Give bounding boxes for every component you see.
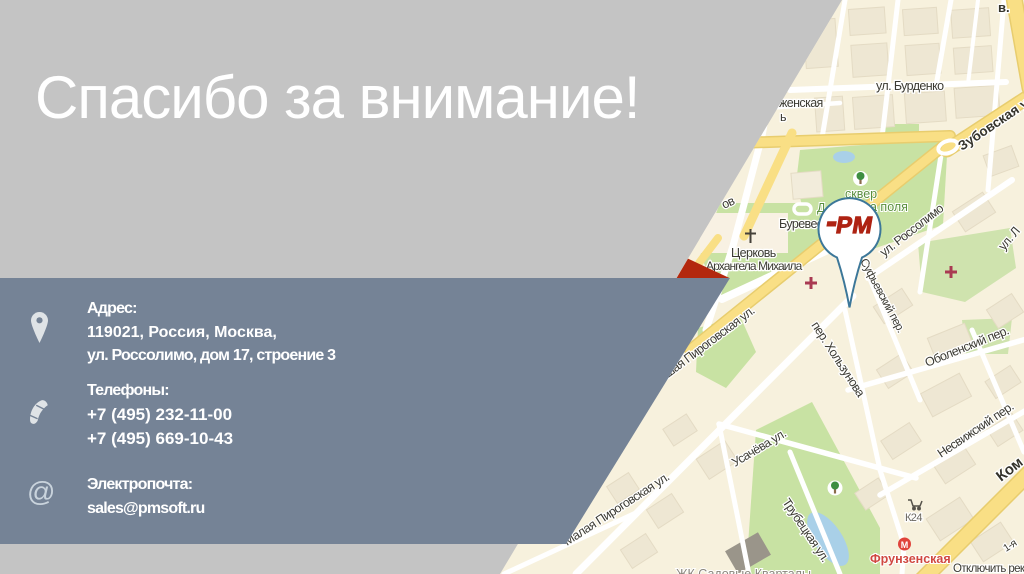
svg-text:ь: ь <box>780 110 786 124</box>
svg-text:М: М <box>901 540 909 550</box>
svg-text:Церковь: Церковь <box>731 246 776 260</box>
svg-text:ул. Бурденко: ул. Бурденко <box>876 79 944 93</box>
svg-text:женская: женская <box>779 96 823 110</box>
svg-text:ЖК Садовые Кварталы: ЖК Садовые Кварталы <box>676 567 811 574</box>
svg-text:в.: в. <box>998 0 1010 15</box>
svg-text:РМ: РМ <box>834 213 875 239</box>
svg-text:К24: К24 <box>905 512 922 524</box>
svg-text:Фрунзенская: Фрунзенская <box>870 552 951 566</box>
svg-text:Отключить рекл: Отключить рекл <box>953 563 1024 574</box>
